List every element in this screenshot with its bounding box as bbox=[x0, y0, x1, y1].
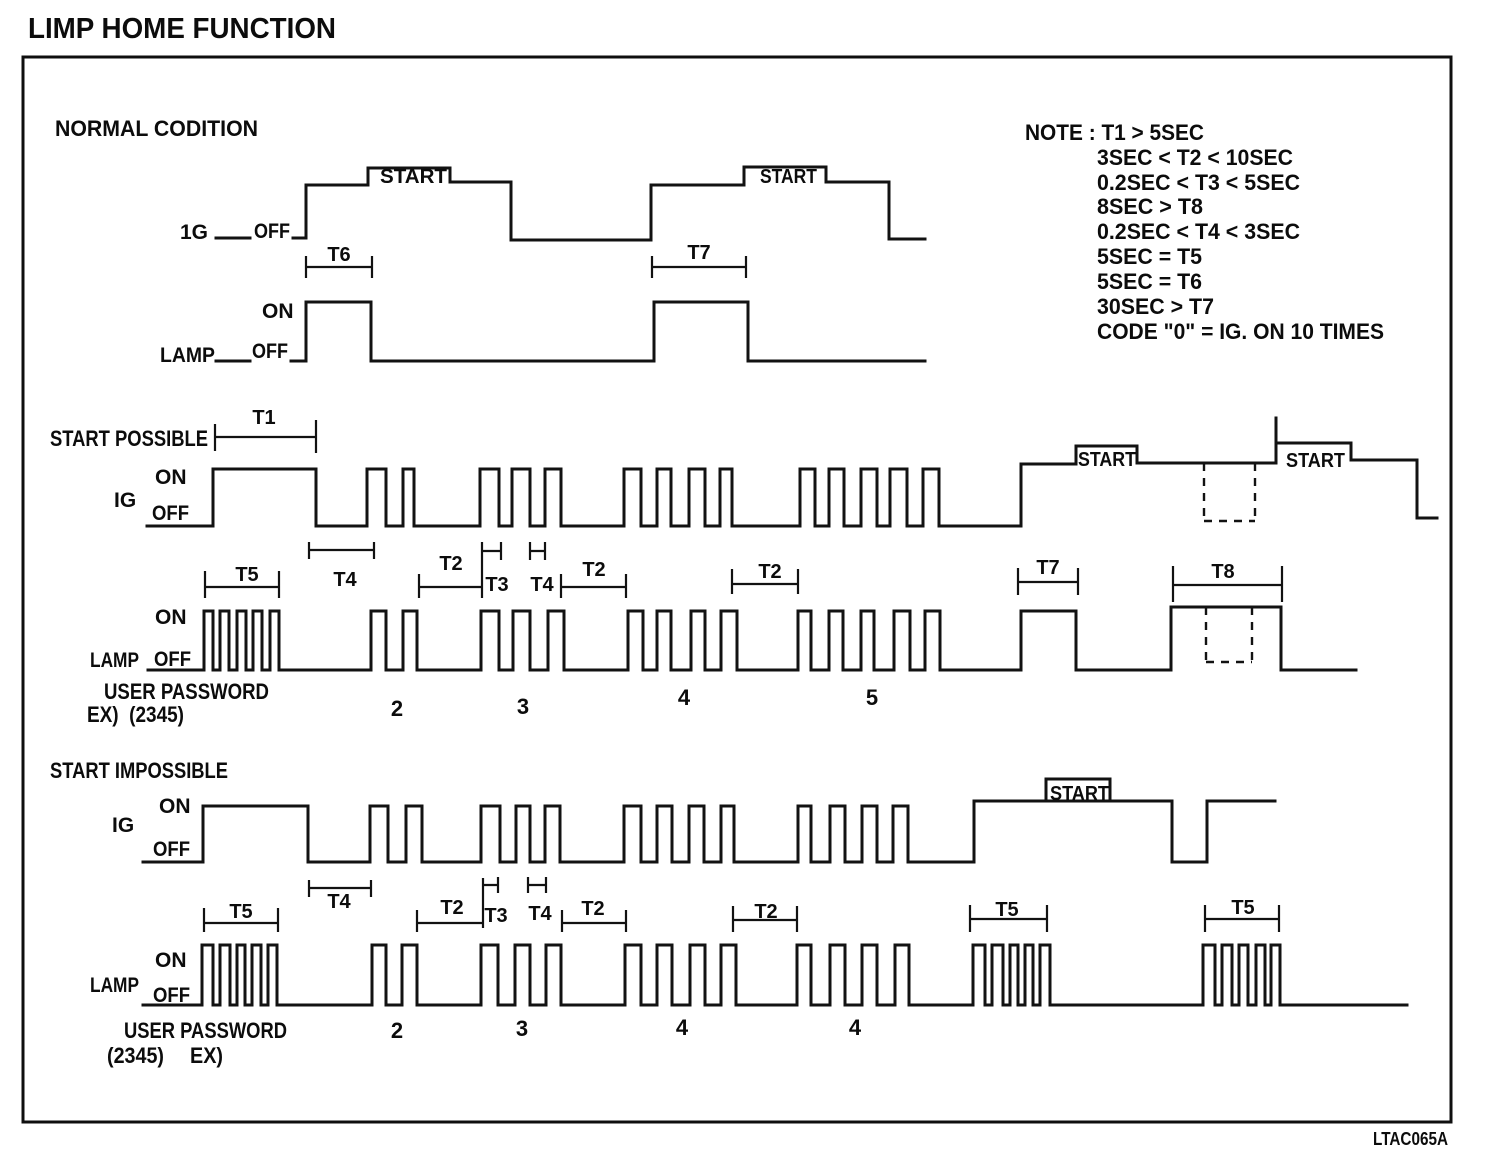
svg-text:ON: ON bbox=[262, 300, 294, 323]
svg-text:5SEC = T6: 5SEC = T6 bbox=[1097, 269, 1202, 294]
svg-text:T5: T5 bbox=[235, 564, 258, 586]
svg-text:START: START bbox=[380, 166, 447, 188]
svg-text:START: START bbox=[1286, 450, 1345, 472]
svg-text:T4: T4 bbox=[327, 891, 351, 913]
svg-text:T7: T7 bbox=[687, 242, 710, 264]
svg-text:OFF: OFF bbox=[152, 502, 189, 525]
svg-text:4: 4 bbox=[678, 685, 691, 710]
svg-text:NORMAL CODITION: NORMAL CODITION bbox=[55, 116, 258, 141]
svg-text:T1: T1 bbox=[252, 407, 275, 429]
svg-text:USER PASSWORD: USER PASSWORD bbox=[104, 679, 269, 704]
svg-text:OFF: OFF bbox=[153, 838, 190, 861]
svg-text:T5: T5 bbox=[1231, 897, 1254, 919]
svg-text:START: START bbox=[1050, 783, 1109, 805]
svg-text:T6: T6 bbox=[327, 244, 350, 266]
svg-text:5: 5 bbox=[866, 685, 878, 710]
svg-text:NOTE : T1 > 5SEC: NOTE : T1 > 5SEC bbox=[1025, 120, 1204, 145]
svg-text:30SEC > T7: 30SEC > T7 bbox=[1097, 294, 1214, 319]
svg-text:0.2SEC < T3 < 5SEC: 0.2SEC < T3 < 5SEC bbox=[1097, 170, 1300, 195]
svg-text:2: 2 bbox=[391, 1018, 403, 1043]
svg-text:CODE "0" = IG. ON 10 TIMES: CODE "0" = IG. ON 10 TIMES bbox=[1097, 319, 1384, 344]
svg-text:LIMP HOME FUNCTION: LIMP HOME FUNCTION bbox=[28, 13, 336, 45]
svg-text:LTAC065A: LTAC065A bbox=[1373, 1129, 1448, 1149]
svg-text:T2: T2 bbox=[440, 897, 463, 919]
svg-text:START IMPOSSIBLE: START IMPOSSIBLE bbox=[50, 758, 228, 783]
svg-text:START: START bbox=[1078, 449, 1136, 471]
svg-text:USER PASSWORD: USER PASSWORD bbox=[124, 1018, 287, 1043]
svg-text:2: 2 bbox=[391, 696, 403, 721]
svg-text:ON: ON bbox=[155, 466, 187, 489]
svg-text:T8: T8 bbox=[1211, 561, 1234, 583]
svg-text:ON: ON bbox=[155, 606, 187, 629]
svg-text:0.2SEC < T4 < 3SEC: 0.2SEC < T4 < 3SEC bbox=[1097, 219, 1300, 244]
svg-text:OFF: OFF bbox=[154, 648, 191, 671]
svg-text:T2: T2 bbox=[754, 901, 777, 923]
svg-text:T3: T3 bbox=[484, 905, 507, 927]
svg-text:5SEC = T5: 5SEC = T5 bbox=[1097, 244, 1202, 269]
svg-text:3: 3 bbox=[516, 1016, 528, 1041]
svg-text:3: 3 bbox=[517, 694, 529, 719]
svg-text:LAMP: LAMP bbox=[90, 974, 139, 997]
svg-text:1G: 1G bbox=[180, 221, 208, 244]
svg-text:4: 4 bbox=[676, 1015, 689, 1040]
svg-text:8SEC > T8: 8SEC > T8 bbox=[1097, 194, 1203, 219]
svg-text:EX): EX) bbox=[190, 1043, 223, 1068]
svg-text:T5: T5 bbox=[229, 901, 252, 923]
svg-text:4: 4 bbox=[849, 1015, 862, 1040]
svg-text:T2: T2 bbox=[581, 898, 604, 920]
svg-text:LAMP: LAMP bbox=[90, 649, 139, 672]
svg-text:OFF: OFF bbox=[254, 220, 290, 243]
svg-text:T2: T2 bbox=[758, 561, 781, 583]
svg-text:ON: ON bbox=[155, 949, 187, 972]
svg-text:IG: IG bbox=[114, 489, 136, 512]
svg-text:3SEC < T2 < 10SEC: 3SEC < T2 < 10SEC bbox=[1097, 145, 1293, 170]
svg-text:START POSSIBLE: START POSSIBLE bbox=[50, 426, 208, 451]
svg-text:T4: T4 bbox=[333, 569, 357, 591]
svg-text:(2345): (2345) bbox=[107, 1043, 164, 1068]
svg-text:T2: T2 bbox=[439, 553, 462, 575]
svg-text:T7: T7 bbox=[1036, 557, 1059, 579]
svg-text:IG: IG bbox=[112, 814, 134, 837]
svg-text:EX) (2345): EX) (2345) bbox=[87, 702, 184, 727]
svg-text:START: START bbox=[760, 166, 817, 188]
svg-text:LAMP: LAMP bbox=[160, 344, 215, 367]
svg-text:T5: T5 bbox=[995, 899, 1018, 921]
svg-text:T2: T2 bbox=[582, 559, 605, 581]
svg-text:T4: T4 bbox=[528, 903, 552, 925]
svg-text:ON: ON bbox=[159, 795, 191, 818]
svg-text:T4: T4 bbox=[530, 574, 554, 596]
svg-text:OFF: OFF bbox=[252, 340, 288, 363]
svg-text:T3: T3 bbox=[485, 574, 508, 596]
